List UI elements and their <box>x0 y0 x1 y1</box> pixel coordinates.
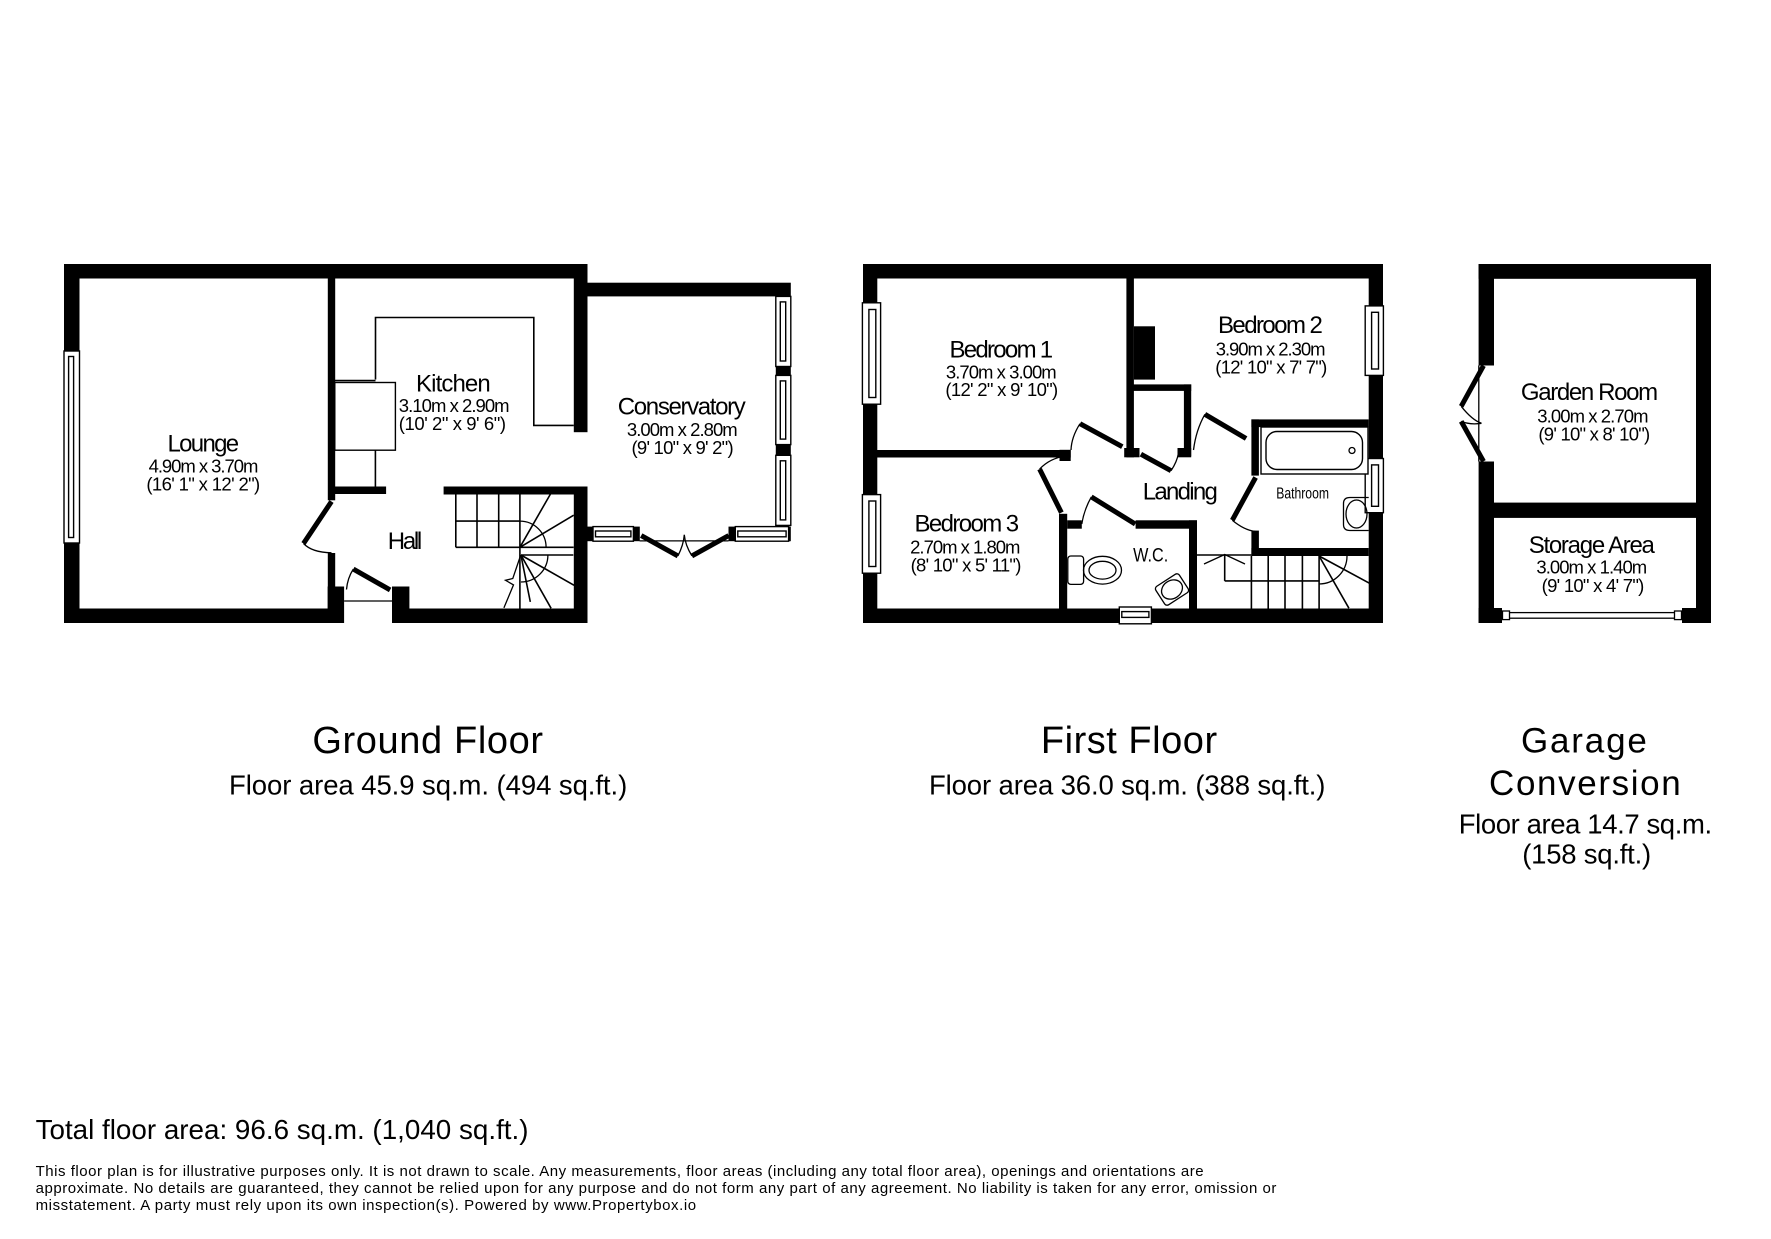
svg-text:(12' 10" x 7' 7"): (12' 10" x 7' 7") <box>1215 357 1327 378</box>
svg-text:Hall: Hall <box>388 528 422 555</box>
svg-text:Garden Room: Garden Room <box>1521 379 1658 406</box>
svg-text:Ground Floor: Ground Floor <box>312 720 543 762</box>
svg-text:W.C.: W.C. <box>1133 545 1168 566</box>
svg-text:Landing: Landing <box>1143 478 1218 505</box>
svg-text:Floor area 14.7 sq.m.: Floor area 14.7 sq.m. <box>1459 809 1712 840</box>
svg-text:misstatement. A party must rel: misstatement. A party must rely upon its… <box>36 1197 697 1214</box>
svg-text:Conservatory: Conservatory <box>618 394 746 421</box>
svg-text:Kitchen: Kitchen <box>416 371 491 398</box>
svg-text:(10' 2" x 9' 6"): (10' 2" x 9' 6") <box>399 413 506 434</box>
svg-text:(9' 10" x 4' 7"): (9' 10" x 4' 7") <box>1542 575 1645 596</box>
svg-text:Bedroom 1: Bedroom 1 <box>949 336 1053 363</box>
svg-text:(8' 10" x 5' 11"): (8' 10" x 5' 11") <box>911 554 1022 575</box>
svg-text:This floor plan is for illustr: This floor plan is for illustrative purp… <box>36 1163 1204 1180</box>
svg-text:Bedroom 3: Bedroom 3 <box>915 511 1020 538</box>
svg-text:(9' 10" x 9' 2"): (9' 10" x 9' 2") <box>632 437 734 458</box>
svg-text:Conversion: Conversion <box>1489 764 1681 803</box>
svg-text:(9' 10" x 8' 10"): (9' 10" x 8' 10") <box>1538 423 1650 444</box>
svg-text:Floor area 45.9 sq.m. (494 sq.: Floor area 45.9 sq.m. (494 sq.ft.) <box>229 769 627 800</box>
svg-text:Storage Area: Storage Area <box>1529 532 1656 559</box>
svg-text:Garage: Garage <box>1521 721 1647 760</box>
svg-text:(158 sq.ft.): (158 sq.ft.) <box>1522 839 1651 870</box>
svg-text:First Floor: First Floor <box>1041 720 1218 762</box>
svg-text:Lounge: Lounge <box>167 431 239 458</box>
svg-text:Bedroom 2: Bedroom 2 <box>1218 312 1323 339</box>
svg-text:Bathroom: Bathroom <box>1276 486 1329 503</box>
svg-text:(16' 1" x 12' 2"): (16' 1" x 12' 2") <box>146 473 260 494</box>
svg-text:Floor area 36.0 sq.m. (388 sq.: Floor area 36.0 sq.m. (388 sq.ft.) <box>929 769 1326 800</box>
svg-text:(12' 2" x 9' 10"): (12' 2" x 9' 10") <box>945 379 1058 400</box>
svg-text:approximate. No details are gu: approximate. No details are guaranteed, … <box>36 1180 1277 1197</box>
svg-text:Total floor area: 96.6 sq.m. (: Total floor area: 96.6 sq.m. (1,040 sq.f… <box>36 1114 529 1145</box>
